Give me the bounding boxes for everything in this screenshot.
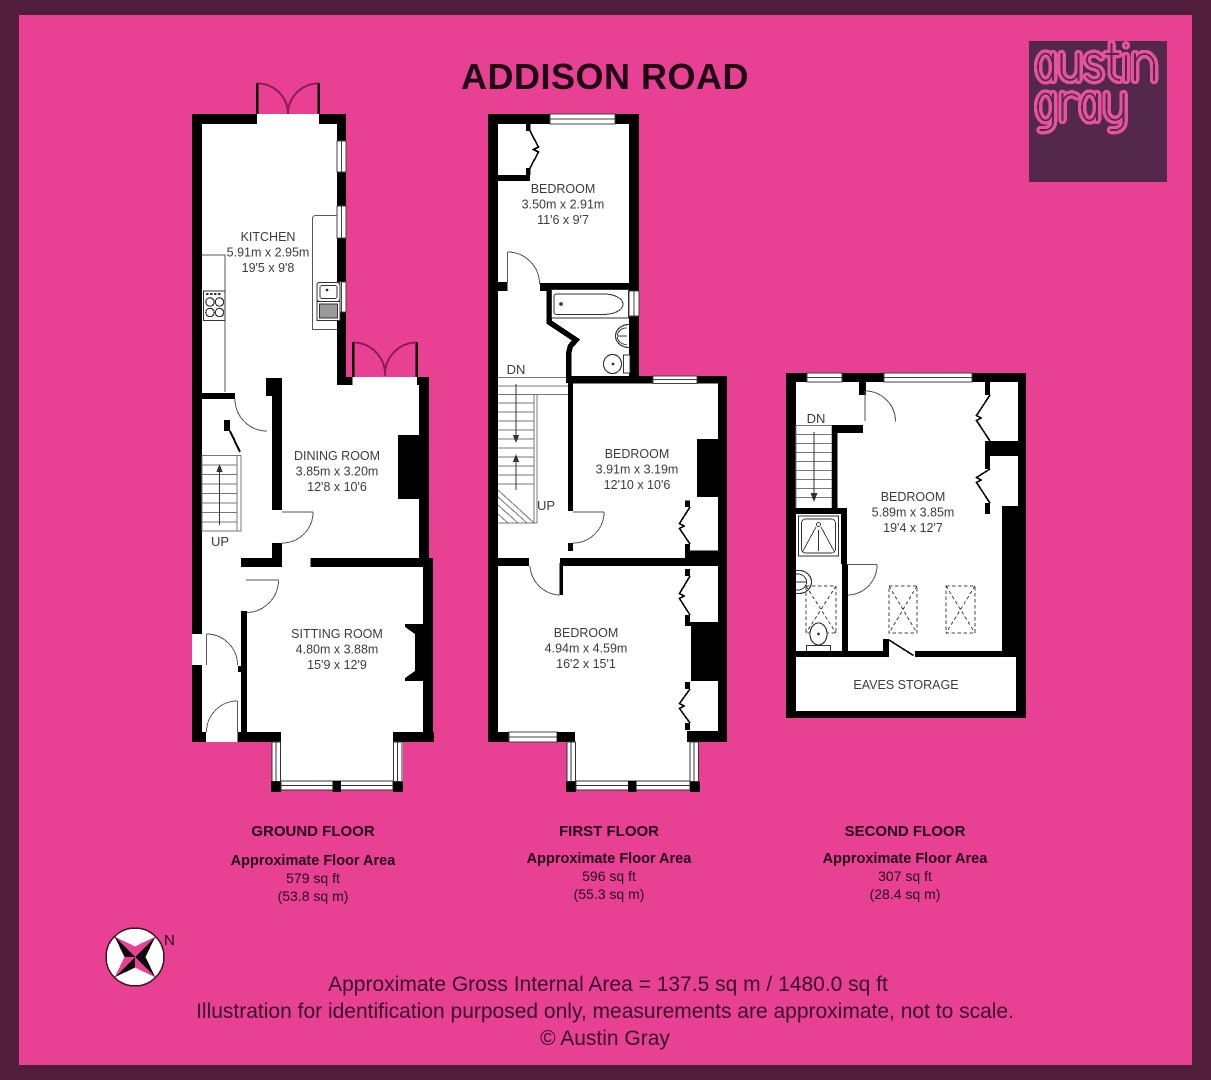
svg-text:EAVES STORAGE: EAVES STORAGE	[853, 678, 958, 692]
svg-text:DN: DN	[507, 362, 526, 377]
svg-text:SECOND FLOOR: SECOND FLOOR	[845, 823, 966, 840]
svg-text:Approximate Gross Internal Are: Approximate Gross Internal Area = 137.5 …	[328, 973, 888, 996]
svg-text:BEDROOM: BEDROOM	[554, 626, 619, 640]
svg-text:BEDROOM: BEDROOM	[531, 182, 596, 196]
svg-text:4.94m x 4.59m: 4.94m x 4.59m	[545, 642, 628, 656]
svg-text:596 sq ft: 596 sq ft	[582, 868, 636, 884]
svg-text:3.50m x 2.91m: 3.50m x 2.91m	[522, 198, 605, 212]
svg-text:© Austin Gray: © Austin Gray	[540, 1027, 670, 1050]
svg-text:(55.3 sq m): (55.3 sq m)	[574, 886, 645, 902]
svg-text:307 sq ft: 307 sq ft	[878, 868, 932, 884]
svg-text:N: N	[164, 932, 175, 949]
svg-text:UP: UP	[211, 534, 229, 549]
svg-text:BEDROOM: BEDROOM	[605, 447, 670, 461]
svg-text:19'4 x 12'7: 19'4 x 12'7	[883, 521, 943, 535]
svg-text:(53.8 sq m): (53.8 sq m)	[278, 888, 349, 904]
svg-text:Approximate Floor Area: Approximate Floor Area	[527, 851, 693, 867]
svg-text:Approximate Floor Area: Approximate Floor Area	[823, 851, 989, 867]
svg-text:BEDROOM: BEDROOM	[881, 490, 946, 504]
svg-text:11'6 x 9'7: 11'6 x 9'7	[537, 213, 589, 227]
svg-text:5.91m x 2.95m: 5.91m x 2.95m	[227, 246, 310, 260]
svg-text:DN: DN	[807, 411, 826, 426]
svg-text:15'9 x 12'9: 15'9 x 12'9	[307, 658, 367, 672]
svg-text:Illustration for identificatio: Illustration for identification purposed…	[196, 1000, 1014, 1023]
svg-text:579 sq ft: 579 sq ft	[286, 870, 340, 886]
svg-text:GROUND FLOOR: GROUND FLOOR	[251, 823, 374, 840]
svg-text:4.80m x 3.88m: 4.80m x 3.88m	[296, 643, 379, 657]
svg-text:ADDISON ROAD: ADDISON ROAD	[461, 56, 749, 97]
svg-text:FIRST FLOOR: FIRST FLOOR	[559, 823, 659, 840]
svg-text:DINING ROOM: DINING ROOM	[294, 449, 380, 463]
svg-text:16'2 x 15'1: 16'2 x 15'1	[556, 657, 616, 671]
svg-text:Approximate Floor Area: Approximate Floor Area	[231, 853, 397, 869]
svg-text:12'8 x 10'6: 12'8 x 10'6	[307, 480, 367, 494]
svg-text:(28.4 sq m): (28.4 sq m)	[870, 886, 941, 902]
svg-text:12'10 x 10'6: 12'10 x 10'6	[604, 478, 671, 492]
svg-text:UP: UP	[537, 498, 555, 513]
svg-text:3.85m x 3.20m: 3.85m x 3.20m	[296, 465, 379, 479]
svg-text:5.89m x 3.85m: 5.89m x 3.85m	[872, 506, 955, 520]
svg-text:SITTING ROOM: SITTING ROOM	[291, 627, 383, 641]
svg-text:19'5 x 9'8: 19'5 x 9'8	[242, 261, 295, 275]
svg-text:KITCHEN: KITCHEN	[241, 230, 296, 244]
svg-text:3.91m x 3.19m: 3.91m x 3.19m	[596, 463, 679, 477]
